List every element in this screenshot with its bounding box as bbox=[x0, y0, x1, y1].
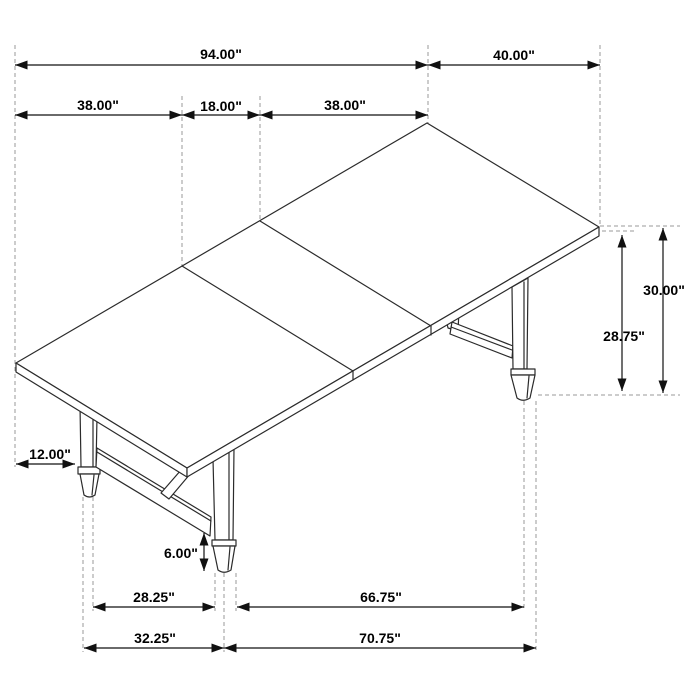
dimension-foot-gap-inner-left: 28.25" bbox=[93, 589, 215, 607]
dimension-foot-span-left: 32.25" bbox=[84, 630, 224, 648]
dimension-drawing-canvas: 94.00" 40.00" 38.00" 18.00" 38.00" 12.00… bbox=[0, 0, 700, 700]
dimension-right-section: 38.00" bbox=[260, 97, 428, 115]
dimension-underside-height: 28.75" bbox=[603, 235, 645, 391]
dim-underside-height-label: 28.75" bbox=[603, 328, 645, 344]
dimension-foot-gap-inner-right: 66.75" bbox=[237, 589, 524, 607]
dim-leaf-section-label: 18.00" bbox=[200, 98, 242, 114]
dimension-foot-span-right: 70.75" bbox=[224, 630, 536, 648]
dim-end-width-label: 40.00" bbox=[493, 47, 535, 63]
dimension-overall-length: 94.00" bbox=[15, 46, 428, 65]
dim-overall-length-label: 94.00" bbox=[200, 46, 242, 62]
dim-end-overhang-label: 12.00" bbox=[29, 446, 71, 462]
dimension-foot-height: 6.00" bbox=[164, 533, 204, 571]
table-dimension-diagram: 94.00" 40.00" 38.00" 18.00" 38.00" 12.00… bbox=[0, 0, 700, 700]
front-left-leg-collar bbox=[212, 540, 236, 546]
dimension-end-width: 40.00" bbox=[428, 47, 600, 65]
dim-foot-gap-inner-right-label: 66.75" bbox=[360, 589, 402, 605]
dim-overall-height-label: 30.00" bbox=[643, 282, 685, 298]
dim-right-section-label: 38.00" bbox=[324, 97, 366, 113]
dim-foot-span-right-label: 70.75" bbox=[359, 630, 401, 646]
dim-foot-height-label: 6.00" bbox=[164, 545, 198, 561]
dimension-end-overhang: 12.00" bbox=[16, 446, 75, 464]
table-drawing bbox=[16, 123, 599, 572]
front-right-leg bbox=[512, 278, 528, 369]
dimension-left-section: 38.00" bbox=[15, 97, 182, 115]
front-right-leg-collar bbox=[511, 369, 535, 375]
dim-foot-span-left-label: 32.25" bbox=[134, 630, 176, 646]
front-left-leg bbox=[213, 448, 234, 540]
dimension-overall-height: 30.00" bbox=[643, 228, 685, 393]
dim-left-section-label: 38.00" bbox=[77, 97, 119, 113]
right-stretcher-rail bbox=[450, 322, 513, 358]
front-left-foot bbox=[213, 546, 235, 572]
front-right-foot bbox=[511, 375, 535, 400]
dim-foot-gap-inner-left-label: 28.25" bbox=[133, 589, 175, 605]
rear-left-foot bbox=[80, 474, 99, 497]
dimension-leaf-section: 18.00" bbox=[182, 98, 260, 115]
